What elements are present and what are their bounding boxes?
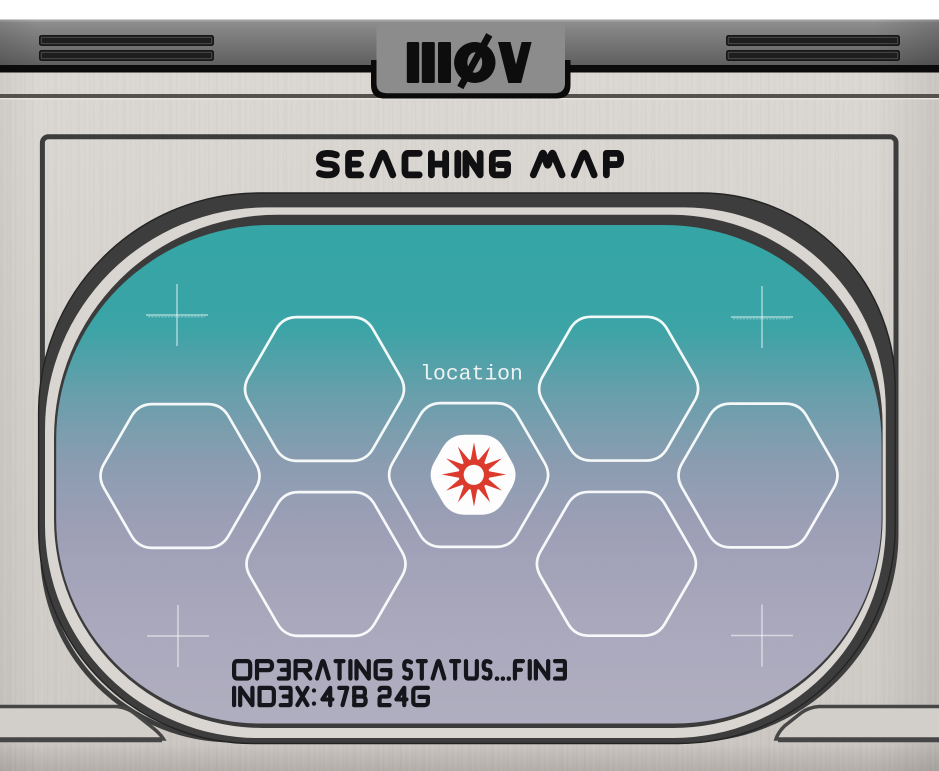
svg-text:location: location bbox=[420, 363, 523, 387]
